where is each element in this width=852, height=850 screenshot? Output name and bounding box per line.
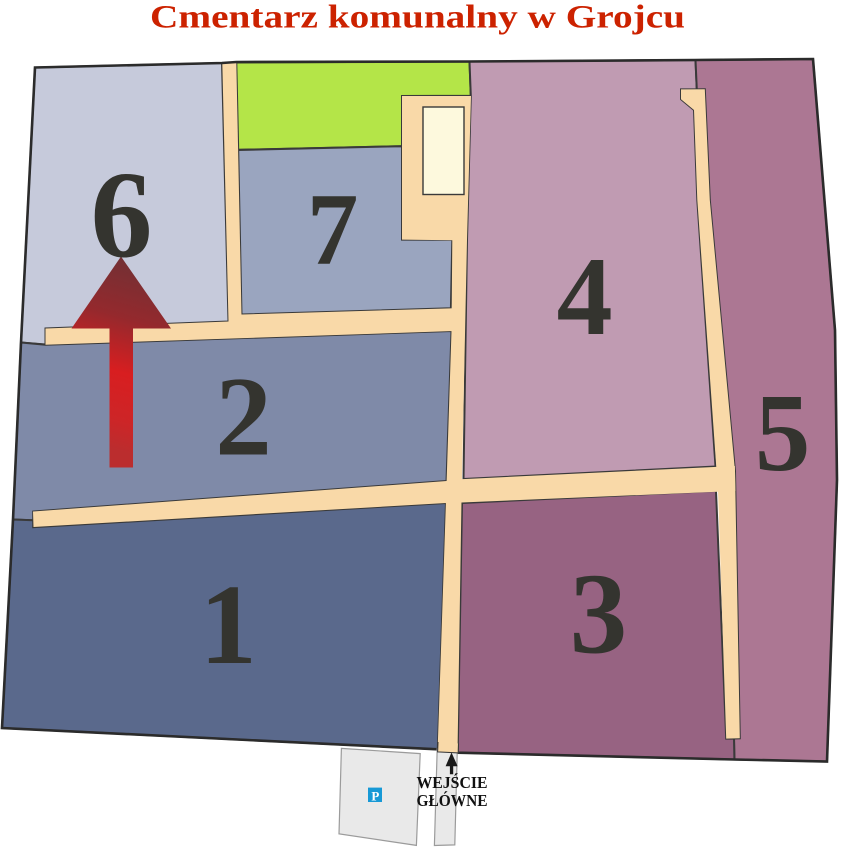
svg-text:3: 3	[570, 551, 628, 678]
svg-text:7: 7	[307, 173, 359, 287]
svg-text:5: 5	[755, 372, 811, 495]
svg-text:Cmentarz komunalny w Grojcu: Cmentarz komunalny w Grojcu	[150, 0, 685, 35]
svg-text:WEJŚCIE: WEJŚCIE	[417, 773, 488, 792]
svg-text:6: 6	[91, 147, 153, 284]
svg-text:4: 4	[557, 235, 613, 359]
svg-text:2: 2	[215, 354, 272, 479]
svg-text:1: 1	[200, 561, 257, 688]
svg-text:GŁÓWNE: GŁÓWNE	[417, 791, 488, 810]
svg-text:P: P	[371, 789, 379, 804]
